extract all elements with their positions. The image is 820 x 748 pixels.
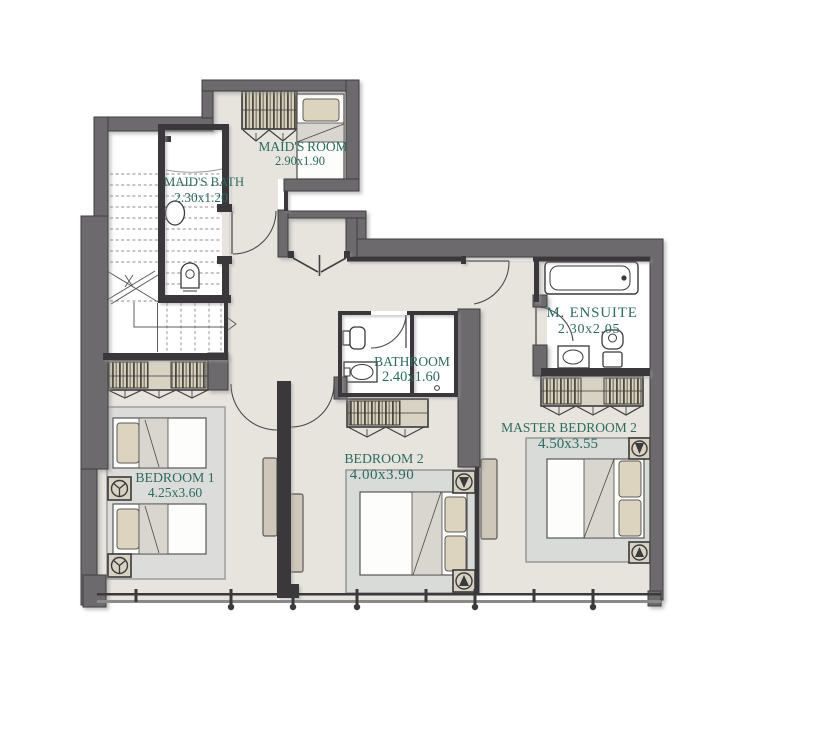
svg-text:BEDROOM 2: BEDROOM 2 xyxy=(344,451,423,466)
svg-text:2.90x1.90: 2.90x1.90 xyxy=(275,154,325,168)
svg-text:MAID'S ROOM: MAID'S ROOM xyxy=(258,139,347,154)
svg-text:2.40x1.60: 2.40x1.60 xyxy=(382,369,440,385)
svg-text:BATHROOM: BATHROOM xyxy=(374,354,450,369)
svg-text:4.00x3.90: 4.00x3.90 xyxy=(350,467,415,483)
svg-text:2.30x1.20: 2.30x1.20 xyxy=(174,190,228,205)
svg-text:M. ENSUITE: M. ENSUITE xyxy=(546,305,637,321)
svg-text:4.25x3.60: 4.25x3.60 xyxy=(148,485,203,500)
svg-text:BEDROOM 1: BEDROOM 1 xyxy=(135,470,214,485)
svg-text:2.30x2.05: 2.30x2.05 xyxy=(558,322,620,337)
svg-text:4.50x3.55: 4.50x3.55 xyxy=(538,436,598,452)
svg-text:MASTER BEDROOM 2: MASTER BEDROOM 2 xyxy=(501,420,637,435)
svg-text:MAID'S BATH: MAID'S BATH xyxy=(164,175,244,189)
